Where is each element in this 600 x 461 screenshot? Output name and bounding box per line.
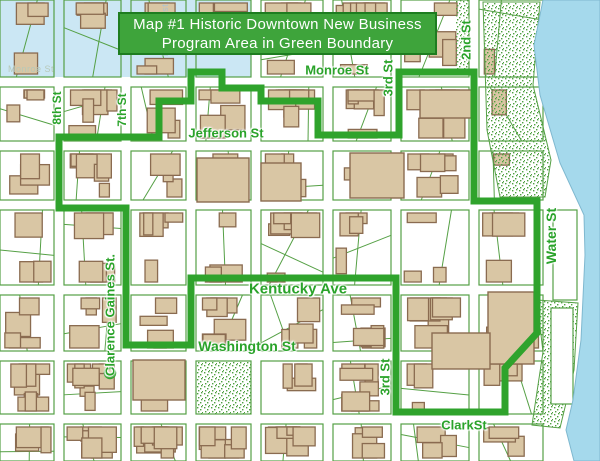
title-line-1: Map #1 Historic Downtown New Business	[133, 15, 422, 34]
street-label-kentucky: Kentucky Ave	[249, 281, 347, 298]
title-line-2: Program Area in Green Boundary	[162, 34, 394, 53]
street-label-third-north: 3rd St	[381, 60, 396, 97]
street-label-jefferson: Jefferson St	[188, 126, 263, 141]
street-label-clarence-gaines: Clarence Gaines St.	[103, 254, 118, 376]
title-banner: Map #1 Historic Downtown New Business Pr…	[118, 12, 437, 55]
street-label-monroe: Monroe St	[305, 63, 369, 78]
street-label-water-st: Water St	[543, 208, 559, 264]
street-label-second: 2nd St	[459, 20, 474, 60]
street-label-seventh: 7th St	[115, 93, 129, 126]
map-canvas: North 8th stMonroe StMonroe StJefferson …	[0, 0, 600, 461]
street-label-third-south: 3rd St	[378, 359, 393, 396]
street-label-washington: Washington St	[198, 338, 295, 354]
street-label-clark: ClarkSt	[441, 418, 487, 433]
street-label-eighth: 8th St	[50, 91, 64, 124]
faint-label-monroe-west: Monroe St	[8, 64, 54, 74]
map-base-graphic	[0, 0, 600, 461]
